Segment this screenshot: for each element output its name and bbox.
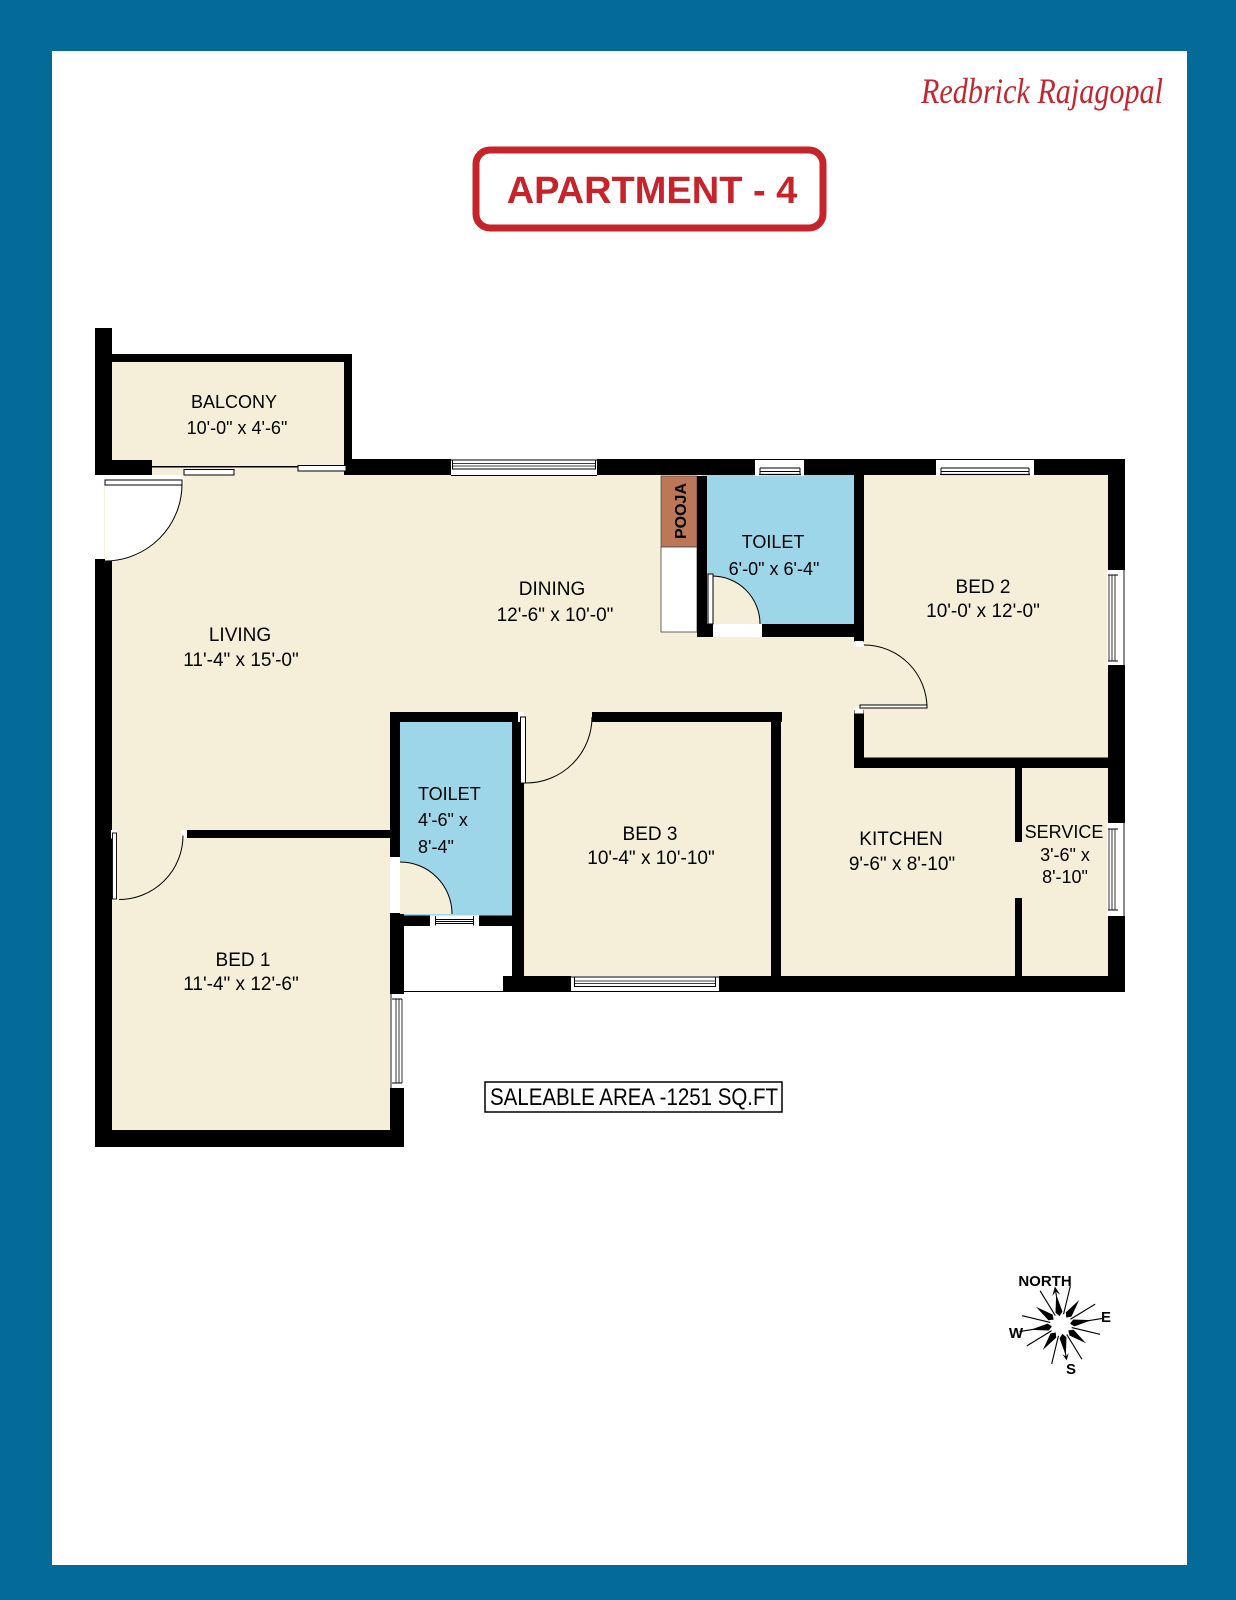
svg-text:KITCHEN: KITCHEN [859, 829, 942, 850]
svg-text:BALCONY: BALCONY [191, 392, 277, 412]
svg-text:12'-6" x 10'-0": 12'-6" x 10'-0" [497, 605, 614, 626]
svg-text:POOJA: POOJA [673, 483, 690, 539]
svg-text:3'-6" x: 3'-6" x [1040, 845, 1090, 865]
svg-text:NORTH: NORTH [1018, 1273, 1071, 1290]
svg-text:S: S [1066, 1361, 1076, 1378]
svg-text:10'-0' x 12'-0": 10'-0' x 12'-0" [926, 601, 1040, 622]
svg-text:DINING: DINING [519, 579, 586, 600]
svg-text:6'-0" x 6'-4": 6'-0" x 6'-4" [729, 559, 820, 579]
svg-text:APARTMENT - 4: APARTMENT - 4 [507, 170, 798, 212]
svg-text:8'-10": 8'-10" [1042, 867, 1088, 887]
svg-text:BED 3: BED 3 [623, 824, 678, 845]
svg-text:Redbrick Rajagopal: Redbrick Rajagopal [920, 71, 1163, 111]
svg-text:8'-4": 8'-4" [418, 837, 454, 857]
svg-text:11'-4" x 12'-6": 11'-4" x 12'-6" [183, 974, 298, 995]
svg-text:TOILET: TOILET [418, 784, 481, 804]
svg-text:BED 1: BED 1 [216, 950, 271, 971]
svg-text:BED 2: BED 2 [956, 577, 1011, 598]
svg-text:9'-6" x 8'-10": 9'-6" x 8'-10" [849, 854, 955, 875]
svg-text:E: E [1101, 1309, 1111, 1326]
svg-text:LIVING: LIVING [209, 625, 271, 646]
svg-text:10'-4" x 10'-10": 10'-4" x 10'-10" [587, 848, 714, 869]
svg-text:10'-0" x 4'-6": 10'-0" x 4'-6" [187, 418, 288, 438]
svg-text:4'-6" x: 4'-6" x [418, 810, 468, 830]
svg-text:SERVICE: SERVICE [1025, 822, 1104, 842]
svg-text:W: W [1009, 1325, 1024, 1342]
svg-text:SALEABLE AREA -1251 SQ.FT: SALEABLE AREA -1251 SQ.FT [490, 1084, 778, 1111]
svg-text:TOILET: TOILET [742, 532, 805, 552]
svg-text:11'-4" x 15'-0": 11'-4" x 15'-0" [183, 650, 298, 671]
